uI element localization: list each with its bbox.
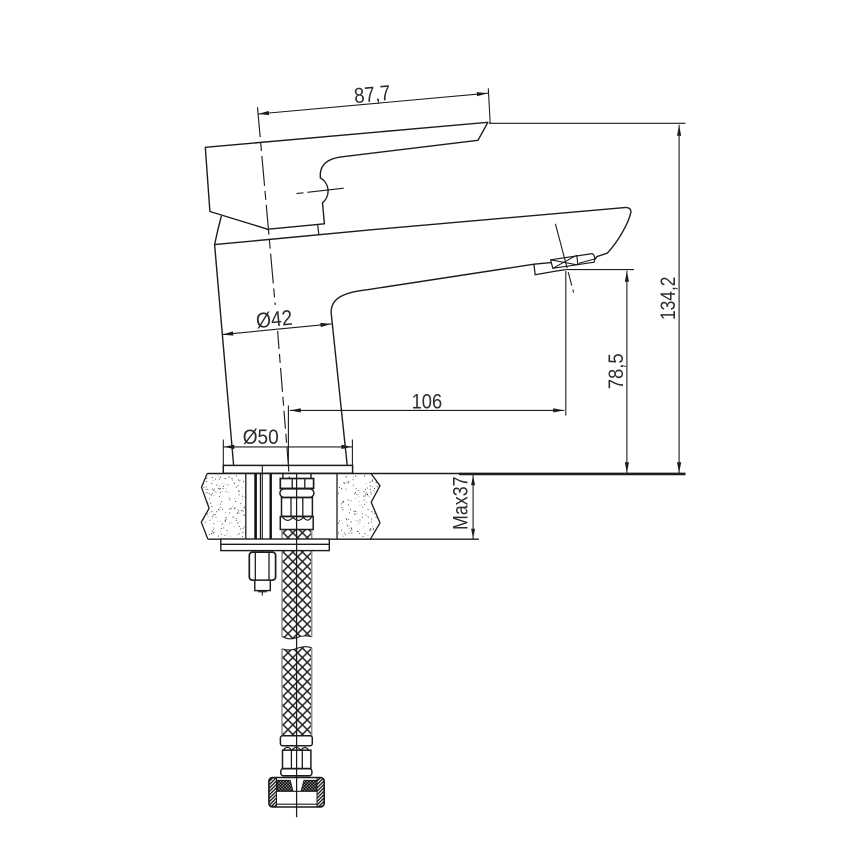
svg-text:Max37: Max37 xyxy=(448,476,472,530)
svg-text:Ø50: Ø50 xyxy=(243,425,279,449)
svg-text:134,2: 134,2 xyxy=(656,277,680,321)
svg-text:78,5: 78,5 xyxy=(604,353,628,389)
svg-text:87,7: 87,7 xyxy=(353,81,392,108)
svg-text:106: 106 xyxy=(412,389,443,413)
svg-text:Ø42: Ø42 xyxy=(255,306,294,333)
